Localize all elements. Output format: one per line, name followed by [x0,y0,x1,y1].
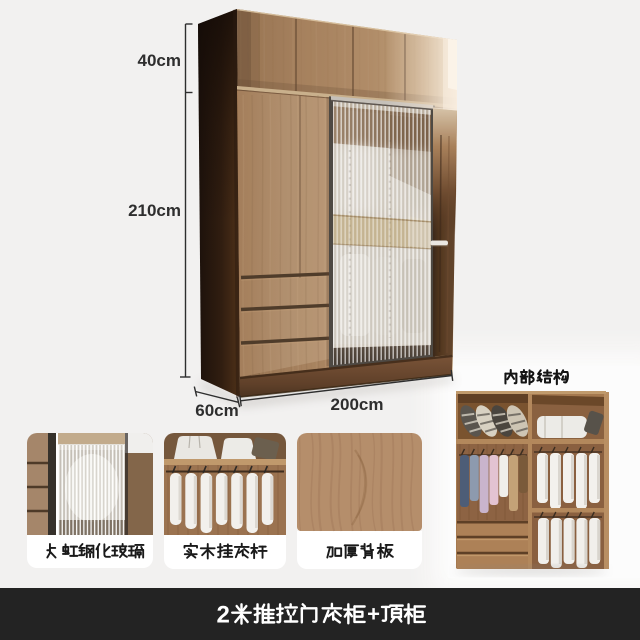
svg-text:200cm: 200cm [331,395,384,414]
svg-text:2: 2 [217,602,230,629]
svg-text:+: + [367,602,380,627]
svg-text:40cm: 40cm [138,51,181,70]
svg-text:210cm: 210cm [128,201,181,220]
svg-text:60cm: 60cm [195,401,238,420]
